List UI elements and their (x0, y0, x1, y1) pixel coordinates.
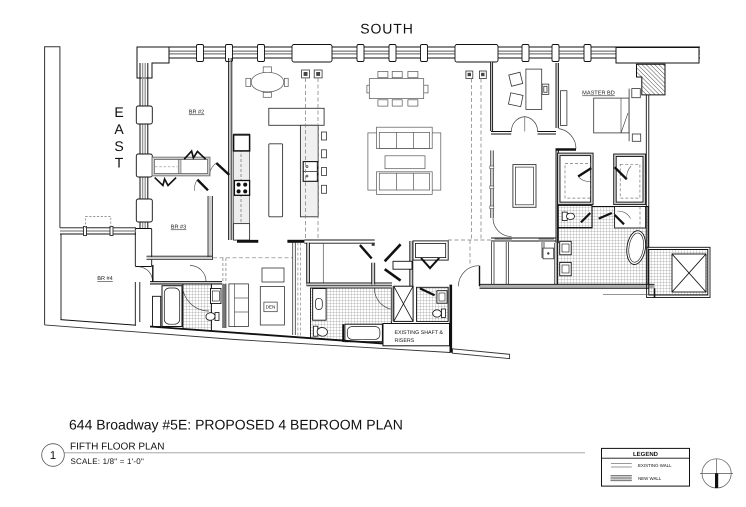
svg-text:RISERS: RISERS (395, 338, 415, 344)
svg-text:A: A (114, 121, 124, 137)
svg-text:BR #3: BR #3 (171, 225, 187, 231)
svg-text:T: T (115, 155, 124, 171)
svg-text:BR #4: BR #4 (97, 276, 113, 282)
svg-text:DEN: DEN (266, 305, 276, 310)
svg-text:FIFTH FLOOR PLAN: FIFTH FLOOR PLAN (70, 442, 164, 453)
svg-text:MASTER BD: MASTER BD (582, 91, 615, 97)
svg-text:S: S (114, 138, 123, 154)
svg-text:E: E (114, 104, 123, 120)
svg-text:1: 1 (50, 450, 56, 462)
svg-text:SOUTH: SOUTH (360, 21, 414, 37)
svg-text:LEGEND: LEGEND (633, 451, 659, 458)
svg-text:EXISTING WALL: EXISTING WALL (638, 463, 672, 468)
svg-text:NEW WALL: NEW WALL (638, 476, 662, 481)
svg-text:EXISTING SHAFT &: EXISTING SHAFT & (395, 330, 444, 336)
svg-text:SCALE: 1/8" = 1'-0": SCALE: 1/8" = 1'-0" (71, 457, 145, 466)
svg-text:BR #2: BR #2 (189, 110, 205, 116)
svg-text:644 Broadway #5E: PROPOSED 4 B: 644 Broadway #5E: PROPOSED 4 BEDROOM PLA… (69, 417, 403, 433)
